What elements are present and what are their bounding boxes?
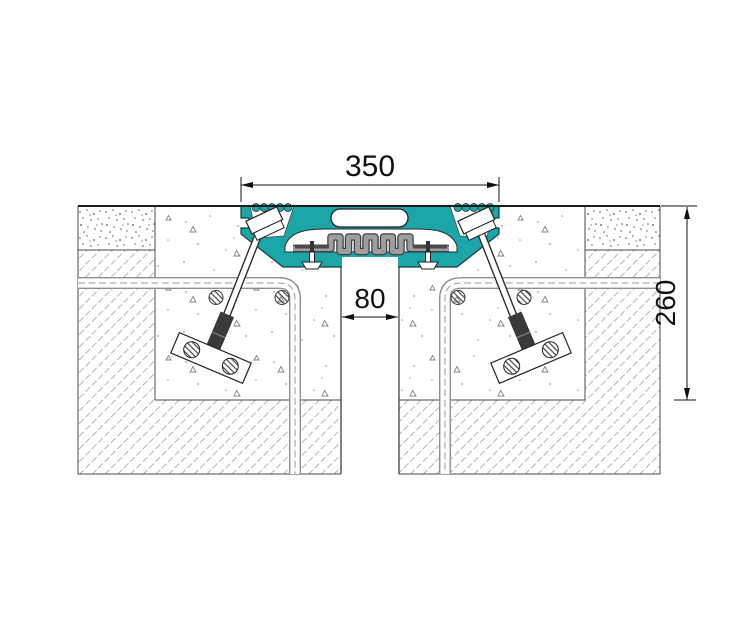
rebar-bar-icon: [451, 291, 465, 305]
left-screed-stipple-band: [78, 206, 155, 250]
rebar-bar-icon: [275, 291, 289, 305]
plate-bolt-icon: [222, 358, 238, 374]
right-screed-stipple-band: [585, 206, 660, 250]
rebar-bar-icon: [209, 291, 223, 305]
dimension-350-label: 350: [345, 150, 395, 183]
plate-bolt-icon: [542, 342, 558, 358]
clamp-bolt-icon: [426, 241, 430, 253]
dimension-80-label: 80: [354, 283, 385, 314]
dimension-350: 350: [241, 150, 499, 202]
rebar-bar-icon: [517, 291, 531, 305]
expansion-joint-drawing: 350 80 260: [0, 0, 750, 635]
dimension-260-label: 260: [650, 280, 681, 327]
plate-bolt-icon: [504, 358, 520, 374]
plate-bolt-icon: [184, 342, 200, 358]
technical-drawing-canvas: 350 80 260: [0, 0, 750, 635]
clamp-bolt-icon: [310, 241, 314, 253]
profile-hollow-chamber: [331, 209, 408, 227]
